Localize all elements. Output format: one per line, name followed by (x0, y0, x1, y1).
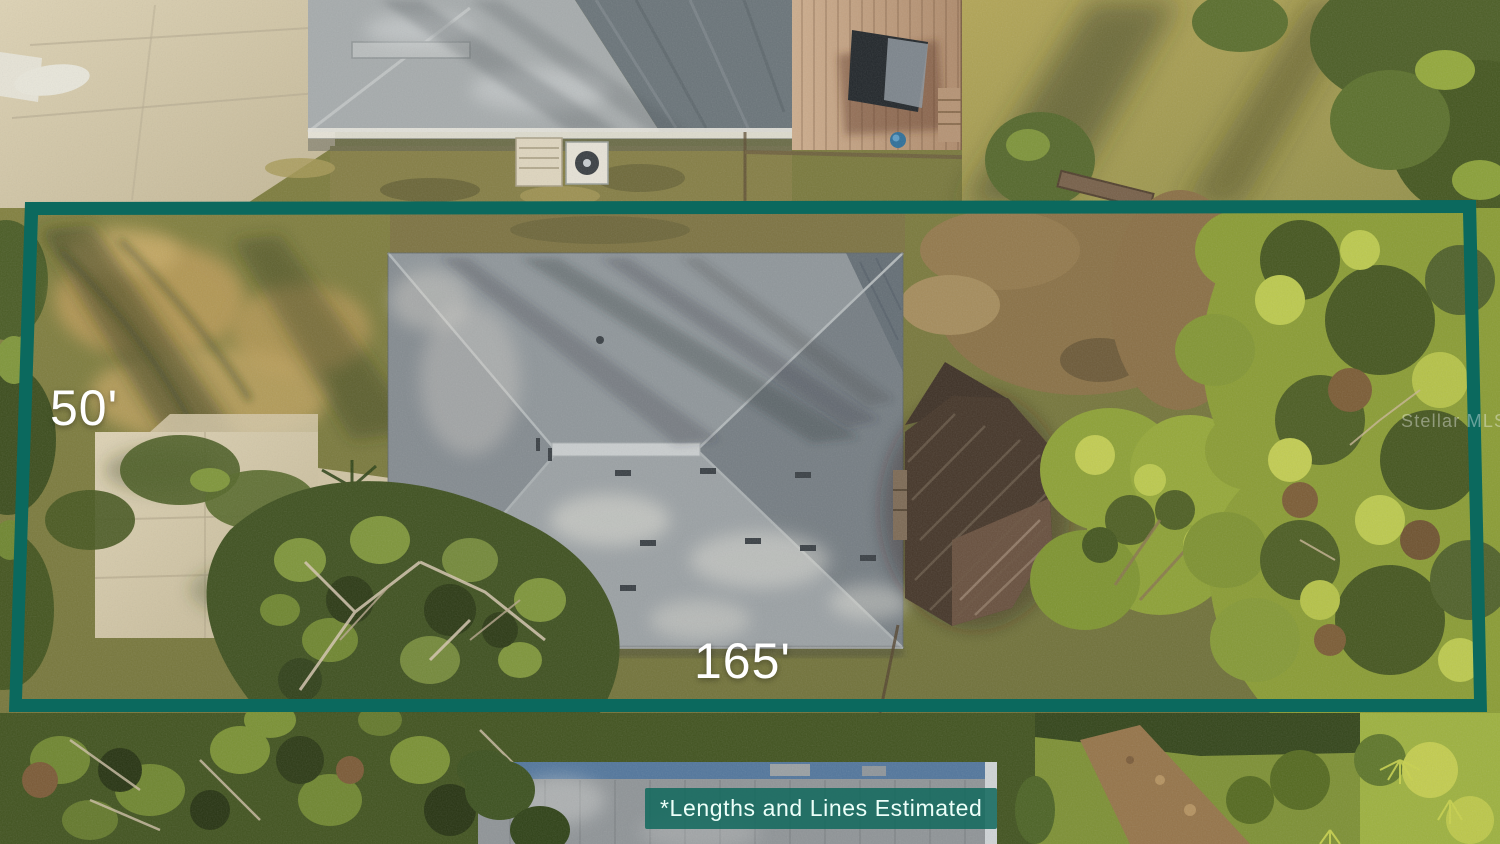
lot-width-label: 50' (50, 383, 118, 433)
photo-grain (0, 0, 1500, 844)
lot-length-label: 165' (694, 636, 791, 686)
disclaimer-banner: *Lengths and Lines Estimated (645, 788, 997, 829)
aerial-photo-scene (0, 0, 1500, 844)
disclaimer-text: *Lengths and Lines Estimated (660, 795, 982, 821)
mls-watermark: Stellar MLS (1401, 411, 1500, 432)
aerial-photo-stage: 50' 165' *Lengths and Lines Estimated St… (0, 0, 1500, 844)
